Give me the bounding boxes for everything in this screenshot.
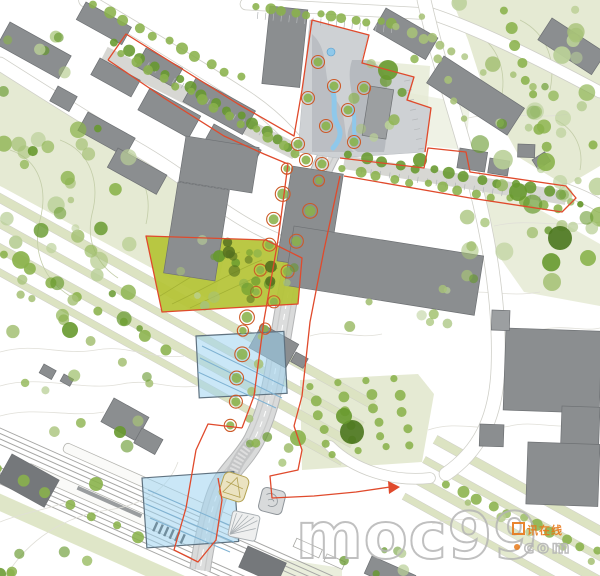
tree	[197, 235, 207, 245]
tree	[559, 543, 567, 551]
building	[491, 310, 510, 331]
tree	[237, 349, 248, 360]
tree	[34, 44, 45, 55]
tree	[91, 269, 104, 282]
tree	[339, 392, 350, 403]
tree	[3, 35, 12, 44]
tree	[76, 418, 86, 428]
tree-large	[114, 426, 126, 438]
tree	[407, 27, 418, 38]
tree	[365, 298, 372, 305]
tree	[70, 121, 87, 138]
site-plan-map	[0, 0, 600, 576]
tree	[68, 197, 75, 204]
tree	[14, 549, 24, 559]
tree	[356, 167, 367, 178]
tree	[269, 214, 279, 224]
tree	[68, 369, 80, 381]
tree	[493, 150, 513, 170]
tree	[302, 156, 311, 165]
tree	[580, 211, 594, 225]
tree	[294, 140, 303, 149]
tree	[314, 58, 323, 67]
tree	[253, 125, 260, 132]
tree	[355, 447, 362, 454]
tree	[461, 115, 467, 121]
tree	[231, 397, 240, 406]
building	[518, 144, 535, 158]
tree	[188, 88, 195, 95]
tree	[496, 513, 506, 523]
tree	[403, 424, 412, 433]
tree	[465, 499, 471, 505]
tree	[17, 275, 27, 285]
tree	[59, 66, 71, 78]
tree	[428, 33, 438, 43]
tree-large	[62, 322, 78, 338]
tree	[118, 358, 127, 367]
tree	[326, 11, 337, 22]
tree	[344, 321, 355, 332]
tree	[575, 542, 584, 551]
tree-large	[509, 183, 527, 201]
tree	[0, 212, 14, 226]
tree	[136, 325, 143, 332]
tree	[419, 13, 425, 19]
tree	[369, 133, 378, 142]
tree	[61, 171, 75, 185]
tree	[567, 23, 584, 40]
tree	[237, 120, 245, 128]
tree	[390, 175, 399, 184]
tree	[277, 189, 288, 200]
tree	[529, 83, 537, 91]
tree	[339, 556, 349, 566]
tree	[529, 90, 537, 98]
tree	[472, 190, 481, 199]
tree	[416, 310, 426, 320]
tree	[495, 242, 513, 260]
tree	[526, 102, 544, 120]
tree	[246, 249, 253, 256]
tree	[371, 171, 381, 181]
tree-large	[548, 226, 572, 250]
tree	[525, 124, 533, 132]
site-plan: moc99 讯在线 com	[0, 0, 600, 576]
tree	[458, 486, 470, 498]
tree	[443, 319, 453, 329]
tree	[344, 106, 353, 115]
tree	[283, 279, 291, 287]
tree	[362, 377, 369, 384]
tree	[176, 267, 185, 276]
tree	[148, 32, 157, 41]
tree	[517, 58, 527, 68]
tree	[241, 283, 254, 296]
tree	[322, 122, 331, 131]
pavilion	[228, 510, 261, 541]
tree	[542, 253, 560, 271]
tree	[556, 189, 567, 200]
tree	[284, 443, 294, 453]
tree	[50, 276, 64, 290]
tree	[437, 181, 448, 192]
tree	[262, 432, 272, 442]
tree	[246, 295, 254, 303]
tree	[229, 252, 238, 261]
tree	[229, 265, 241, 277]
tree	[9, 235, 22, 248]
tree	[42, 140, 55, 153]
tree	[306, 383, 313, 390]
tree	[41, 386, 49, 394]
tree	[160, 74, 169, 83]
tree	[251, 276, 260, 285]
tree	[525, 528, 534, 537]
tree	[544, 186, 555, 197]
tree	[132, 531, 144, 543]
pavilion	[257, 486, 286, 515]
tree	[571, 6, 579, 14]
tree	[390, 375, 397, 382]
tree	[375, 418, 384, 427]
tree	[56, 309, 69, 322]
tree	[376, 432, 384, 440]
tree	[553, 46, 570, 63]
tree	[256, 266, 264, 274]
tree	[577, 201, 583, 207]
tree	[589, 140, 598, 149]
tree	[265, 261, 277, 273]
tree	[381, 547, 387, 553]
tree	[90, 252, 108, 270]
tree	[104, 7, 116, 19]
pond	[327, 48, 335, 56]
tree	[16, 290, 24, 298]
tree	[338, 165, 345, 172]
building	[526, 442, 600, 506]
tree	[12, 251, 30, 269]
tree	[523, 195, 542, 214]
tree	[94, 222, 108, 236]
tree	[305, 206, 316, 217]
tree	[574, 177, 581, 184]
tree	[120, 149, 136, 165]
tree	[510, 71, 517, 78]
tree	[330, 82, 339, 91]
tree	[89, 1, 97, 9]
tree	[398, 564, 410, 576]
tree	[117, 311, 132, 326]
tree	[54, 207, 66, 219]
tree	[397, 407, 407, 417]
tree	[194, 292, 201, 299]
tree-large	[580, 250, 596, 266]
tree	[497, 119, 507, 129]
bridge	[196, 331, 287, 398]
tree	[59, 546, 70, 557]
tree	[93, 307, 102, 316]
tree	[480, 69, 487, 76]
tree	[430, 165, 438, 173]
tree	[238, 111, 246, 119]
tree-large	[89, 477, 103, 491]
tree	[226, 421, 234, 429]
tree	[405, 441, 413, 449]
tree	[425, 180, 432, 187]
tree	[447, 47, 455, 55]
tree	[477, 175, 487, 185]
tree	[28, 146, 38, 156]
tree	[383, 443, 390, 450]
tree	[356, 124, 366, 134]
tree	[67, 295, 78, 306]
tree	[435, 41, 444, 50]
tree	[54, 33, 64, 43]
tree	[113, 521, 121, 529]
tree	[397, 88, 406, 97]
tree	[189, 51, 200, 62]
tree	[556, 128, 566, 138]
tree	[378, 18, 385, 25]
tree	[553, 175, 567, 189]
tree	[313, 410, 323, 420]
tree	[122, 237, 136, 251]
tree	[139, 330, 151, 342]
tree	[239, 327, 246, 334]
tree	[176, 75, 184, 83]
tree	[344, 151, 352, 159]
tree	[352, 16, 361, 25]
tree-large	[336, 408, 352, 424]
building	[262, 6, 308, 88]
tree	[209, 103, 219, 113]
tree	[439, 285, 447, 293]
tree	[350, 138, 359, 147]
tree	[579, 84, 596, 101]
tree	[252, 3, 259, 10]
tree	[176, 43, 188, 55]
tree	[82, 147, 95, 160]
tree	[253, 249, 262, 258]
tree	[291, 236, 301, 246]
tree	[28, 295, 35, 302]
tree	[405, 179, 413, 187]
tree	[251, 439, 260, 448]
tree	[320, 425, 329, 434]
tree	[348, 93, 359, 104]
tree	[123, 45, 135, 57]
tree	[21, 379, 29, 387]
tree	[392, 23, 399, 30]
tree	[143, 65, 153, 75]
tree	[197, 94, 208, 105]
tree	[71, 224, 79, 232]
tree	[20, 160, 29, 169]
tree	[317, 10, 324, 17]
tree	[541, 83, 549, 91]
tree	[461, 53, 468, 60]
tree	[232, 373, 242, 383]
tree	[135, 23, 145, 33]
tree	[117, 50, 124, 57]
tree	[262, 132, 273, 143]
tree	[46, 243, 56, 253]
tree	[86, 336, 96, 346]
tree	[34, 223, 49, 238]
tree	[220, 68, 229, 77]
tree	[362, 18, 370, 26]
tree	[444, 76, 452, 84]
tree	[171, 83, 179, 91]
tree	[452, 186, 462, 196]
tree	[265, 3, 276, 14]
tree	[500, 7, 508, 15]
tree	[311, 396, 322, 407]
tree	[460, 210, 475, 225]
tree	[302, 11, 310, 19]
tree	[166, 37, 174, 45]
tree	[208, 291, 220, 303]
building	[479, 424, 504, 447]
building	[503, 328, 600, 413]
tree	[322, 440, 330, 448]
tree	[142, 372, 152, 382]
tree	[443, 167, 455, 179]
tree	[480, 218, 490, 228]
tree	[521, 76, 530, 85]
tree	[82, 556, 92, 566]
tree	[537, 119, 551, 133]
tree	[544, 527, 555, 538]
tree	[207, 59, 217, 69]
tree	[570, 52, 582, 64]
tree	[588, 558, 595, 565]
tree	[315, 177, 322, 184]
tree	[542, 142, 552, 152]
tree	[109, 290, 116, 297]
pavilion-roof	[257, 486, 286, 515]
tree	[132, 56, 143, 67]
tree	[429, 309, 439, 319]
tree	[278, 459, 286, 467]
tree	[133, 416, 144, 427]
tree	[360, 84, 369, 93]
tree	[0, 251, 8, 259]
tree	[318, 160, 327, 169]
tree	[419, 34, 429, 44]
tree	[489, 502, 499, 512]
tree	[242, 312, 253, 323]
tree	[485, 56, 500, 71]
tree	[117, 15, 128, 26]
tree	[577, 101, 587, 111]
tree	[11, 137, 26, 152]
tree	[276, 6, 286, 16]
tree	[433, 54, 442, 63]
tree	[87, 512, 96, 521]
tree	[334, 379, 341, 386]
tree	[450, 97, 457, 104]
tree	[509, 40, 520, 51]
tree	[160, 345, 171, 356]
tree	[245, 256, 253, 264]
tree	[49, 426, 60, 437]
tree	[237, 73, 245, 81]
tree	[6, 325, 19, 338]
tree	[290, 263, 299, 272]
tree	[461, 242, 478, 259]
tree	[395, 390, 406, 401]
tree	[367, 389, 378, 400]
tree	[527, 227, 538, 238]
tree	[291, 9, 300, 18]
tree	[469, 274, 478, 283]
tree-large	[543, 273, 561, 291]
tree	[410, 55, 418, 63]
tree	[304, 94, 313, 103]
tree	[548, 90, 559, 101]
tree	[389, 114, 400, 125]
tree	[279, 141, 289, 151]
tree	[110, 39, 118, 47]
tree	[94, 125, 102, 133]
tree	[567, 198, 574, 205]
tree	[329, 451, 336, 458]
tree	[442, 481, 450, 489]
tree	[18, 475, 30, 487]
tree	[368, 403, 378, 413]
tree	[397, 549, 406, 558]
tree	[496, 179, 508, 191]
tree	[555, 110, 571, 126]
tree	[471, 494, 482, 505]
tree	[471, 135, 489, 153]
tree	[39, 487, 50, 498]
tree-large	[537, 153, 555, 171]
tree	[121, 440, 134, 453]
tree	[336, 13, 346, 23]
tree	[520, 514, 528, 522]
tree	[121, 285, 136, 300]
tree	[225, 112, 234, 121]
tree	[65, 500, 75, 510]
tree	[109, 183, 122, 196]
tree	[361, 152, 373, 164]
tree	[458, 171, 469, 182]
tree	[506, 22, 518, 34]
